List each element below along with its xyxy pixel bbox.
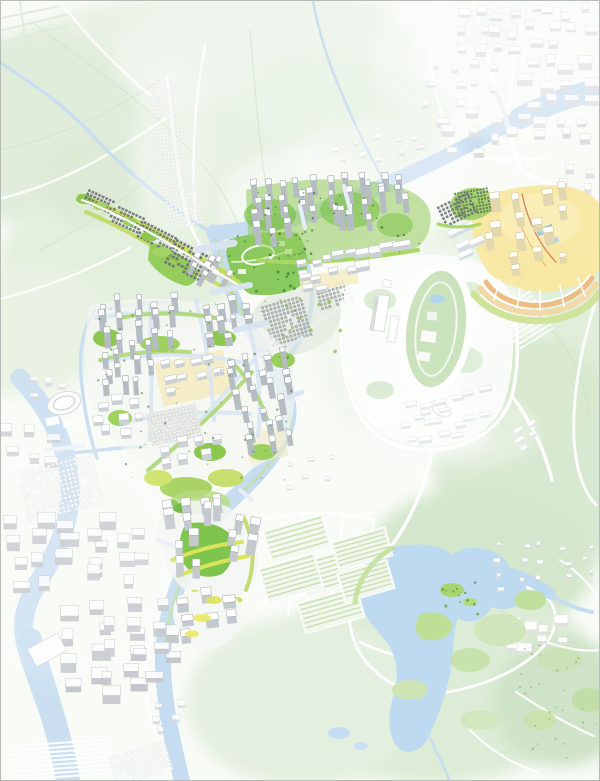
grandstand	[383, 279, 392, 287]
lake-park-blob	[524, 710, 556, 730]
south-yellow-accent	[185, 631, 199, 638]
ne-district-park	[377, 213, 413, 237]
sports-courts	[238, 269, 246, 274]
pond	[328, 727, 350, 739]
lake-park-blob	[450, 648, 490, 672]
south-yellow-accent	[206, 596, 222, 604]
south-yellow-accent	[193, 614, 211, 622]
sw-park-blob	[208, 469, 244, 487]
lake-park-blob	[460, 710, 500, 730]
race-pond	[429, 295, 445, 304]
haze	[360, 390, 540, 470]
nw-arm-green-pocket	[152, 247, 172, 257]
masterplan-map	[0, 0, 600, 781]
lake-park-blob	[538, 648, 582, 672]
race-infield-pad	[427, 311, 438, 320]
haze	[132, 60, 212, 240]
race-ground-green	[366, 381, 394, 399]
masterplan-map-canvas	[0, 0, 600, 781]
lake-park-blob	[392, 680, 428, 700]
pond	[354, 742, 368, 750]
lake-park-blob	[514, 590, 546, 610]
lake-park-blob	[474, 614, 526, 646]
race-infield-pad	[417, 351, 430, 361]
race-infield-pad	[420, 330, 436, 343]
